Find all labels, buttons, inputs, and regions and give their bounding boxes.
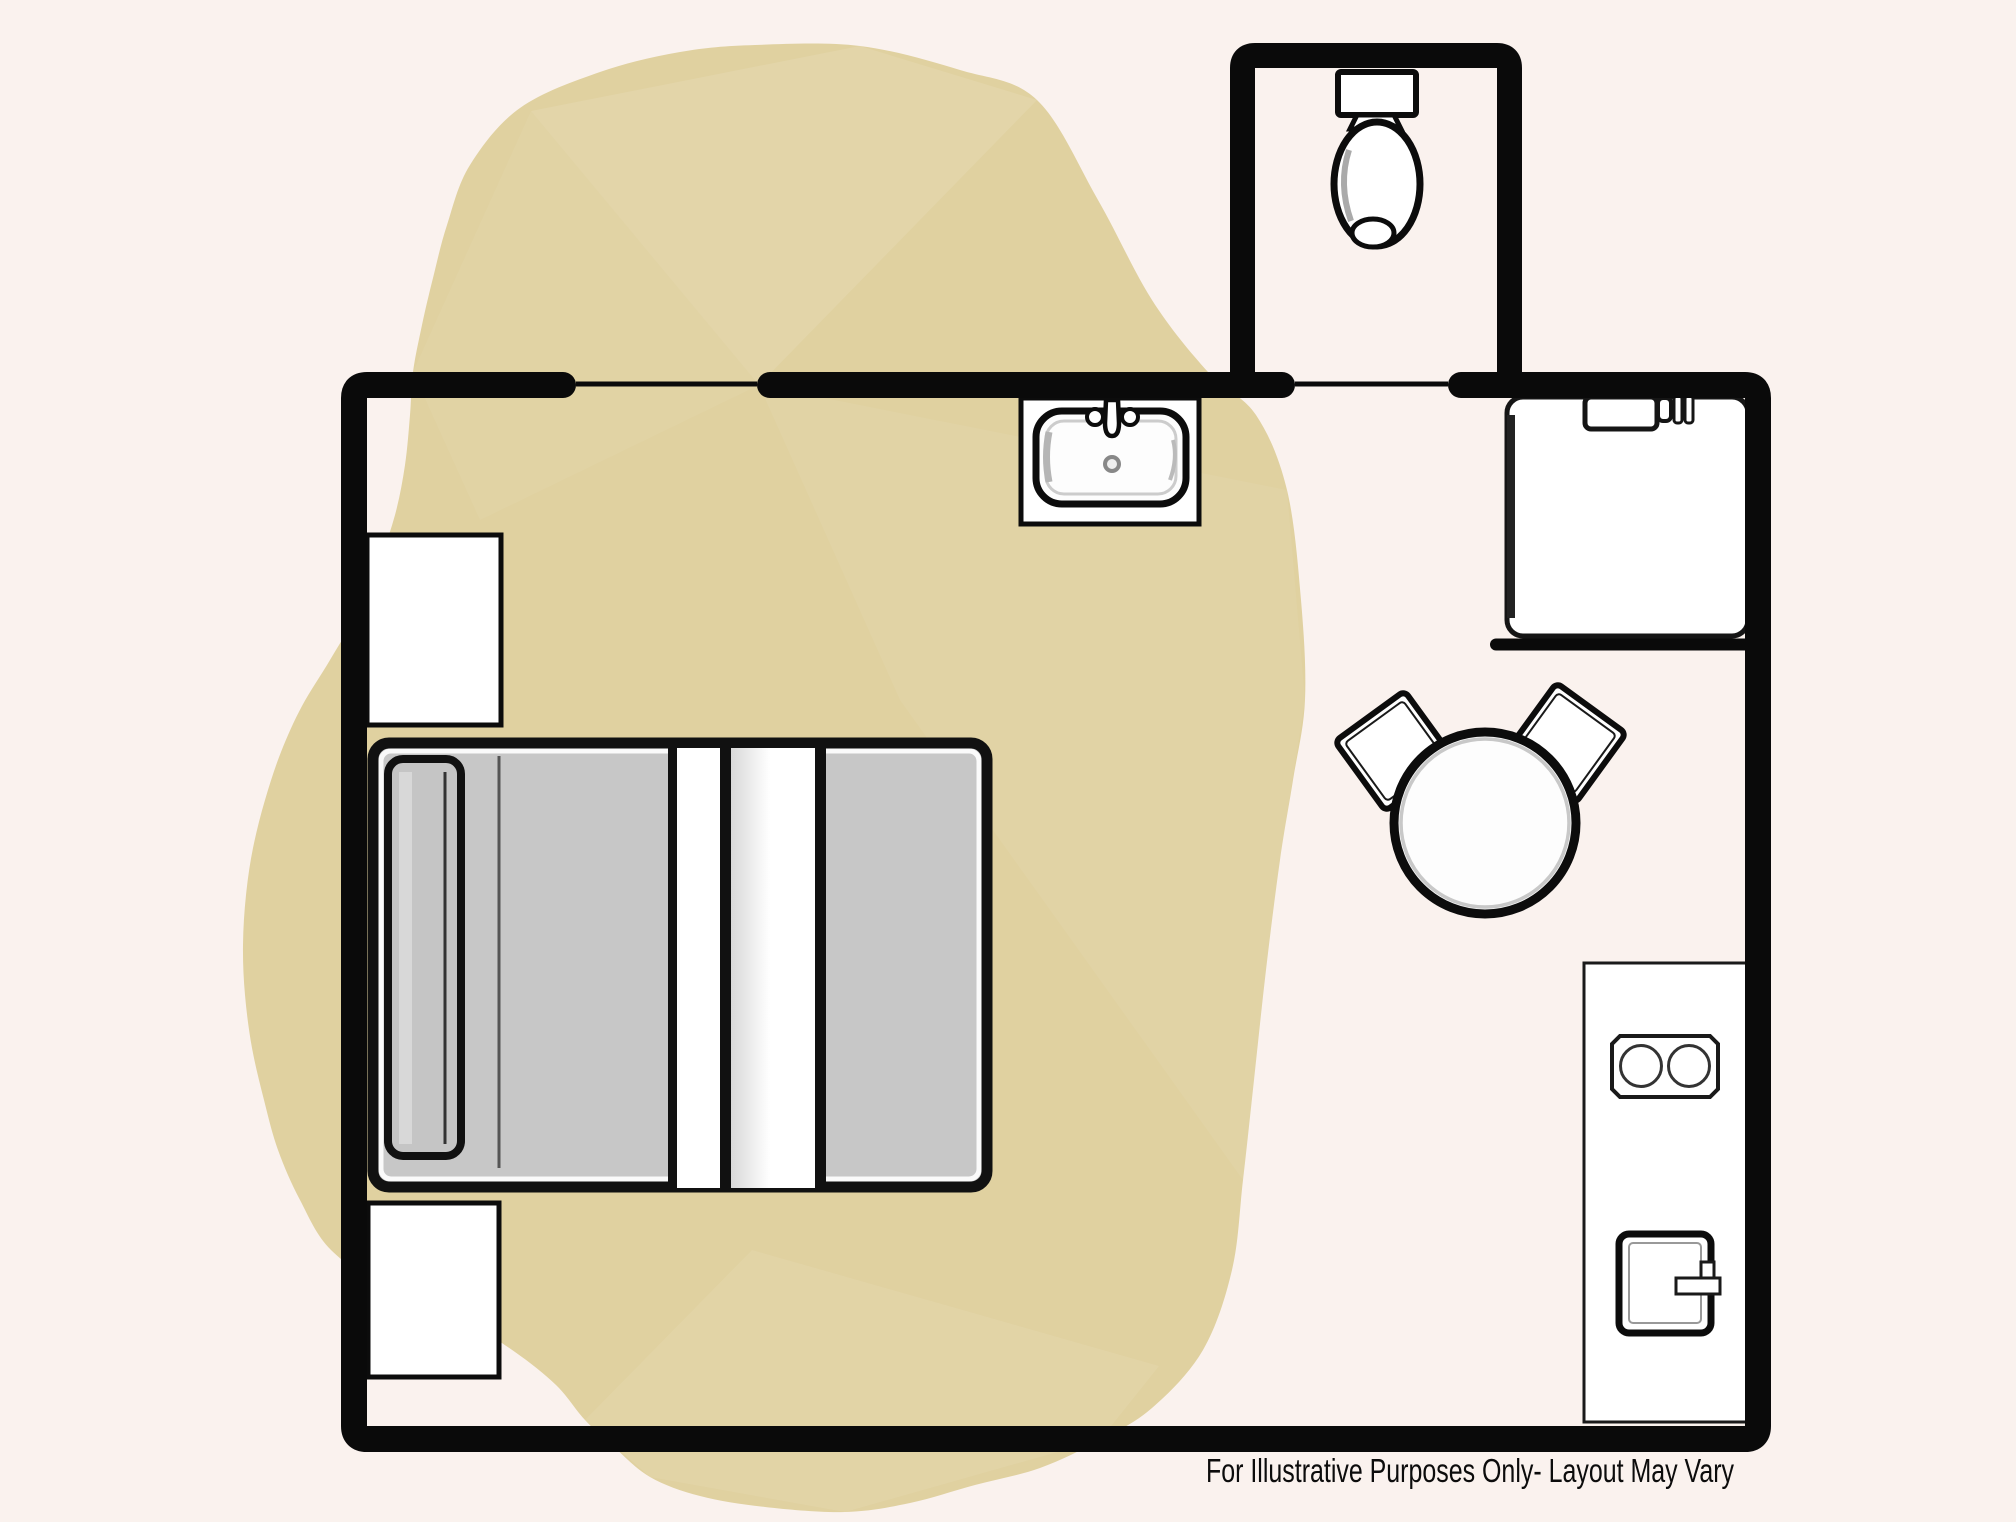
svg-text:For Illustrative Purposes Only: For Illustrative Purposes Only- Layout M… [1206, 1452, 1734, 1489]
